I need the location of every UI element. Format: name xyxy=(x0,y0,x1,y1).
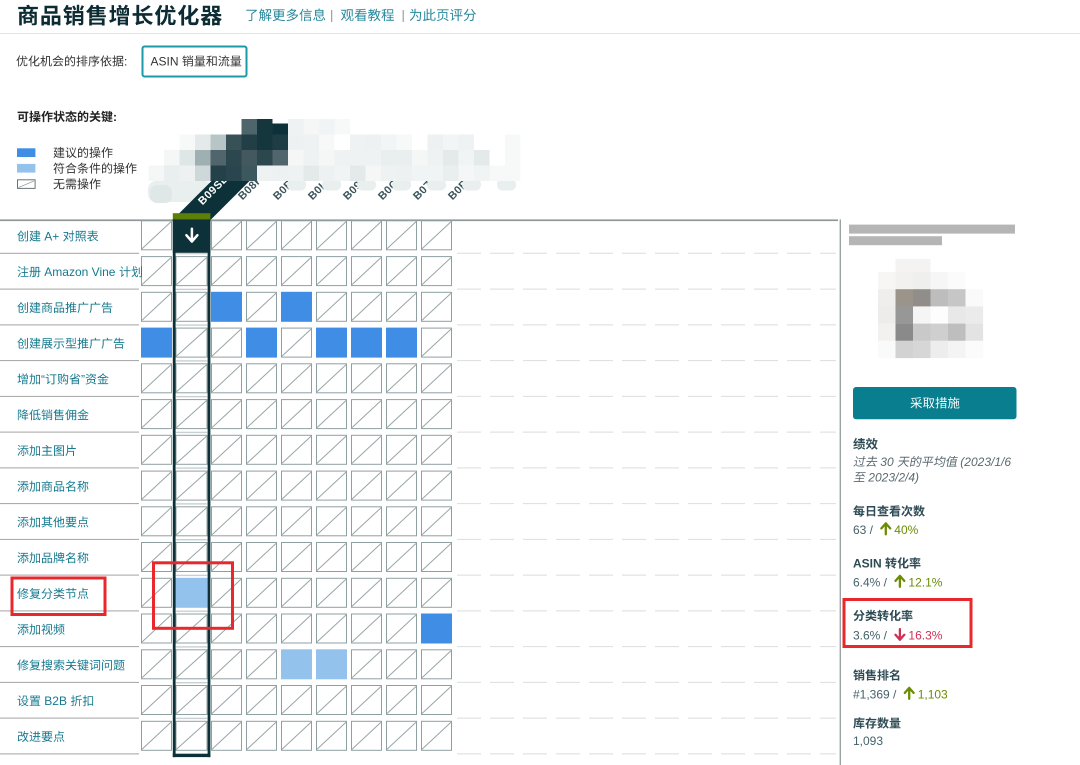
svg-text:30: 30 xyxy=(880,455,894,469)
svg-text:Amazon Vine: Amazon Vine xyxy=(44,265,115,279)
svg-text:12.1%: 12.1% xyxy=(908,576,942,590)
svg-text:3.6% /: 3.6% / xyxy=(853,629,888,643)
svg-text:6.4% /: 6.4% / xyxy=(853,576,888,590)
svg-text:ASIN: ASIN xyxy=(853,557,882,571)
svg-text:1,093: 1,093 xyxy=(853,734,883,748)
svg-text:B2B: B2B xyxy=(44,694,67,708)
svg-text:1,103: 1,103 xyxy=(918,688,948,702)
svg-text:|: | xyxy=(330,8,333,23)
svg-text::: : xyxy=(113,110,117,124)
svg-text:16.3%: 16.3% xyxy=(908,629,942,643)
svg-text:#1,369 /: #1,369 / xyxy=(853,688,897,702)
svg-text:|: | xyxy=(402,8,405,23)
svg-text::: : xyxy=(124,55,127,69)
svg-text:63 /: 63 / xyxy=(853,523,874,537)
svg-text:2023/2/4): 2023/2/4) xyxy=(867,471,919,485)
svg-text:ASIN: ASIN xyxy=(151,55,179,69)
svg-text:”: ” xyxy=(81,373,85,387)
svg-text:40%: 40% xyxy=(894,523,918,537)
svg-text:A+: A+ xyxy=(44,230,59,244)
svg-text:“: “ xyxy=(41,373,45,387)
svg-text:(2023/1/6: (2023/1/6 xyxy=(960,455,1011,469)
